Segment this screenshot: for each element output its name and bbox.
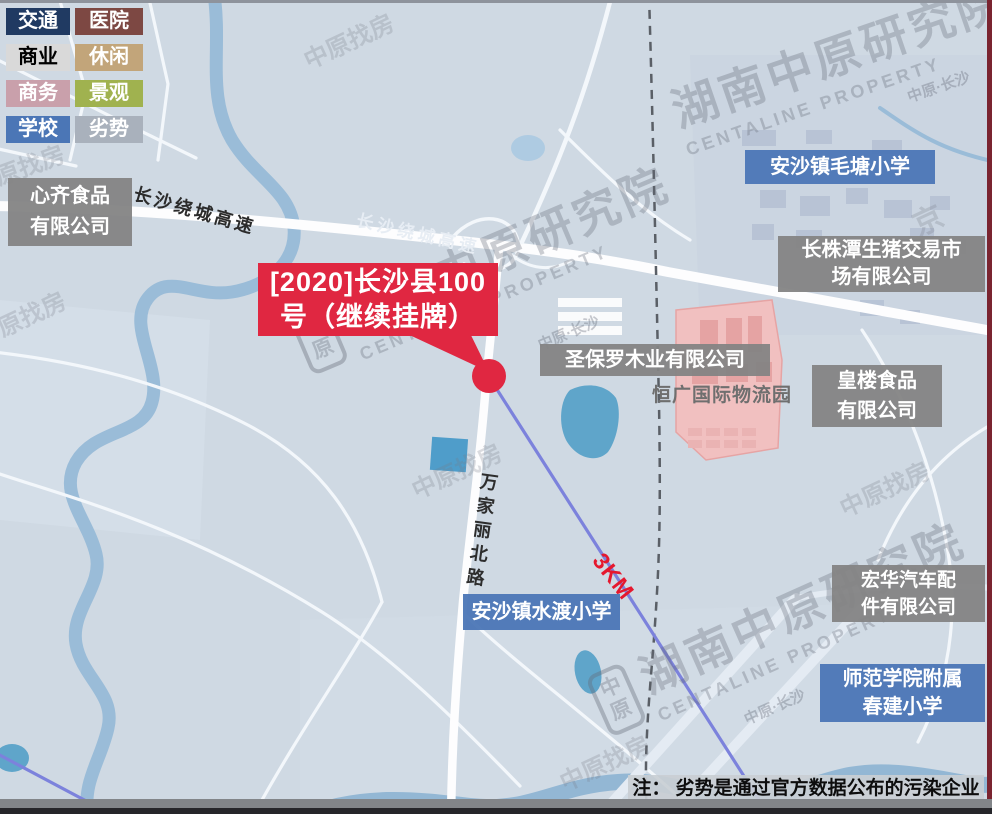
label-honghua-autoparts: 宏华汽车配 件有限公司: [832, 565, 985, 622]
urban-zone: [690, 55, 992, 335]
legend-item-school: 学校: [6, 116, 70, 143]
label-line: 有限公司: [812, 396, 942, 426]
legend-item-business: 商务: [6, 80, 70, 107]
frame-bottom: [0, 799, 992, 808]
label-line: 件有限公司: [832, 594, 985, 621]
legend-item-hospital: 医院: [75, 8, 143, 35]
label-shifan-school: 师范学院附属 春建小学: [820, 664, 985, 722]
callout-line1: [2020]长沙县100: [258, 265, 498, 300]
legend-item-leisure: 休闲: [75, 44, 143, 71]
label-line: 心齐食品: [8, 181, 132, 212]
label-line: 皇楼食品: [812, 366, 942, 396]
legend: 交通 医院 商业 休闲 商务 景观 学校 劣势: [6, 8, 143, 143]
label-line: 圣保罗木业有限公司: [540, 346, 770, 375]
label-xinqi-food: 心齐食品 有限公司: [8, 178, 132, 246]
building-rows: [558, 298, 622, 335]
frame-right: [987, 0, 992, 814]
note-bar: 注： 劣势是通过官方数据公布的污染企业: [628, 775, 984, 802]
light-zone: [0, 300, 210, 540]
label-line: 师范学院附属: [820, 665, 985, 693]
site-callout: [2020]长沙县100 号（继续挂牌）: [258, 263, 498, 336]
legend-item-commerce: 商业: [6, 44, 70, 71]
label-pig-market: 长株潭生猪交易市 场有限公司: [778, 236, 985, 292]
label-huanglou-food: 皇楼食品 有限公司: [812, 365, 942, 427]
legend-item-disadvantage: 劣势: [75, 116, 143, 143]
legend-item-landscape: 景观: [75, 80, 143, 107]
legend-item-transport: 交通: [6, 8, 70, 35]
callout-line2: 号（继续挂牌）: [258, 300, 498, 335]
label-stpaul-wood: 圣保罗木业有限公司: [540, 344, 770, 376]
label-line: 春建小学: [820, 693, 985, 721]
logistics-park-label: 恒广国际物流园: [652, 380, 792, 407]
label-maotang-school: 安沙镇毛塘小学: [745, 150, 935, 184]
frame-bottom-dark: [0, 808, 992, 814]
label-shuidu-school: 安沙镇水渡小学: [463, 594, 620, 630]
label-line: 长株潭生猪交易市: [778, 237, 985, 264]
label-line: 安沙镇毛塘小学: [745, 153, 935, 182]
frame-top: [0, 0, 992, 3]
label-line: 有限公司: [8, 212, 132, 243]
label-line: 安沙镇水渡小学: [463, 598, 620, 627]
label-line: 场有限公司: [778, 264, 985, 291]
map-screenshot: 湖南中原研究院 CENTALINE PROPERTY 中原·长沙 中 原 湖南中…: [0, 0, 992, 814]
label-line: 宏华汽车配: [832, 567, 985, 594]
